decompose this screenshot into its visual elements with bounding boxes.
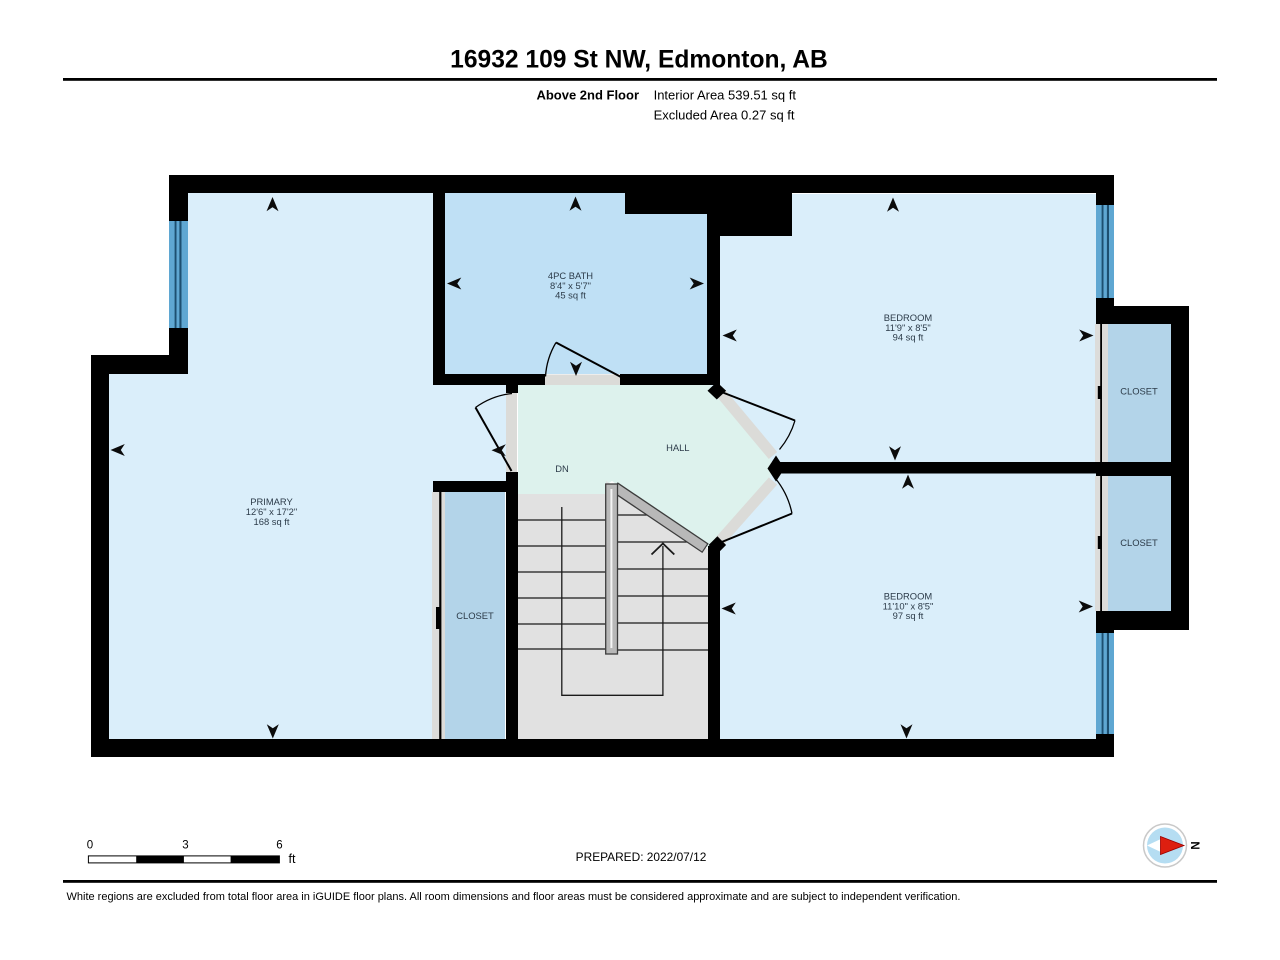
svg-text:94 sq ft: 94 sq ft (893, 332, 924, 343)
svg-text:Above 2nd Floor: Above 2nd Floor (536, 87, 639, 102)
svg-text:16932 109 St NW, Edmonton, AB: 16932 109 St NW, Edmonton, AB (450, 47, 828, 74)
svg-text:97 sq ft: 97 sq ft (893, 610, 924, 621)
svg-text:CLOSET: CLOSET (1120, 537, 1158, 548)
svg-text:Interior Area 539.51 sq ft: Interior Area 539.51 sq ft (654, 87, 797, 102)
svg-text:White regions are excluded fro: White regions are excluded from total fl… (67, 891, 961, 903)
svg-text:Excluded Area 0.27 sq ft: Excluded Area 0.27 sq ft (654, 107, 795, 122)
svg-text:ft: ft (289, 852, 296, 866)
svg-text:CLOSET: CLOSET (1120, 386, 1158, 397)
svg-text:3: 3 (182, 840, 188, 852)
svg-text:0: 0 (87, 840, 93, 852)
svg-text:6: 6 (276, 840, 282, 852)
svg-text:PREPARED: 2022/07/12: PREPARED: 2022/07/12 (576, 850, 707, 864)
svg-text:N: N (1188, 841, 1200, 849)
svg-text:45 sq ft: 45 sq ft (555, 290, 586, 301)
svg-text:HALL: HALL (666, 442, 689, 453)
svg-text:168 sq ft: 168 sq ft (254, 516, 290, 527)
svg-text:DN: DN (555, 463, 569, 474)
svg-text:CLOSET: CLOSET (456, 610, 494, 621)
